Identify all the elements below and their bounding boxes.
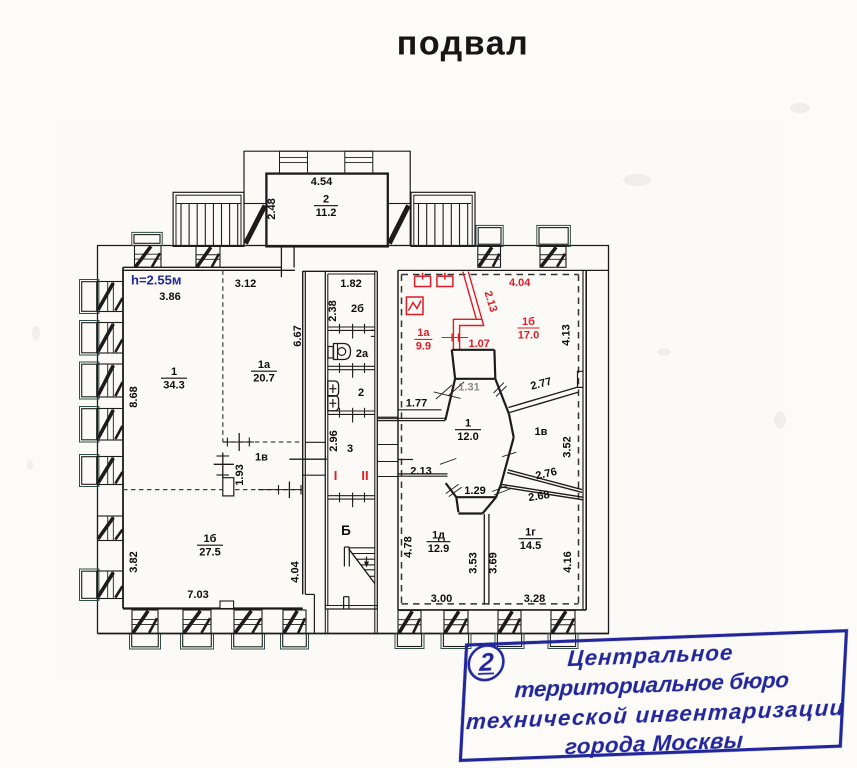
svg-text:12.0: 12.0 [457,431,478,443]
svg-text:2: 2 [478,648,494,677]
svg-text:3.00: 3.00 [431,593,452,605]
svg-text:1а: 1а [417,327,430,339]
svg-text:2: 2 [358,387,364,399]
svg-text:2б: 2б [351,303,364,315]
svg-text:7.03: 7.03 [187,589,208,601]
svg-text:1.77: 1.77 [406,398,427,410]
svg-text:2.38: 2.38 [327,300,339,321]
svg-text:Б: Б [341,523,351,538]
svg-text:4.78: 4.78 [403,536,415,557]
svg-text:2.48: 2.48 [266,198,278,219]
svg-text:2.96: 2.96 [328,430,340,451]
svg-text:12.9: 12.9 [428,543,449,555]
svg-text:1б: 1б [204,533,217,545]
svg-text:3.12: 3.12 [235,278,256,290]
svg-text:h=2.55м: h=2.55м [131,273,181,288]
svg-text:3: 3 [347,443,353,455]
svg-text:3.86: 3.86 [159,291,180,303]
svg-text:4.04: 4.04 [509,277,531,289]
svg-text:1д: 1д [432,530,445,542]
svg-text:2: 2 [323,194,329,206]
svg-text:4.16: 4.16 [562,551,574,572]
svg-text:1.29: 1.29 [464,485,485,497]
svg-text:1.07: 1.07 [468,338,489,350]
svg-text:14.5: 14.5 [520,540,541,552]
svg-text:2.13: 2.13 [410,466,431,478]
svg-text:1.82: 1.82 [340,278,361,290]
svg-text:34.3: 34.3 [163,380,184,392]
svg-text:3.52: 3.52 [562,436,574,457]
svg-text:3.69: 3.69 [488,552,500,573]
svg-text:4.54: 4.54 [311,176,333,188]
svg-text:8.68: 8.68 [128,386,140,407]
svg-text:3.82: 3.82 [128,551,140,572]
svg-text:1б: 1б [522,316,535,328]
svg-text:I: I [334,468,338,483]
svg-text:11.2: 11.2 [316,207,337,219]
svg-text:27.5: 27.5 [199,547,220,559]
svg-text:1: 1 [171,366,177,378]
svg-text:4.04: 4.04 [290,560,302,582]
svg-text:3.53: 3.53 [468,552,480,573]
svg-text:1в: 1в [535,426,548,438]
svg-text:17.0: 17.0 [518,329,539,341]
svg-text:9.9: 9.9 [416,341,431,353]
svg-text:1г: 1г [525,527,536,539]
svg-text:1в: 1в [255,452,268,464]
svg-text:II: II [361,468,368,483]
svg-text:3.28: 3.28 [524,593,545,605]
svg-text:6.67: 6.67 [292,325,304,346]
svg-text:20.7: 20.7 [253,373,274,385]
svg-text:4.13: 4.13 [561,324,573,345]
svg-text:1а: 1а [258,359,271,371]
svg-text:подвал: подвал [397,25,529,63]
svg-text:1.93: 1.93 [234,464,246,485]
svg-text:1.31: 1.31 [458,382,479,394]
svg-text:2а: 2а [356,348,369,360]
svg-text:1: 1 [465,418,471,430]
